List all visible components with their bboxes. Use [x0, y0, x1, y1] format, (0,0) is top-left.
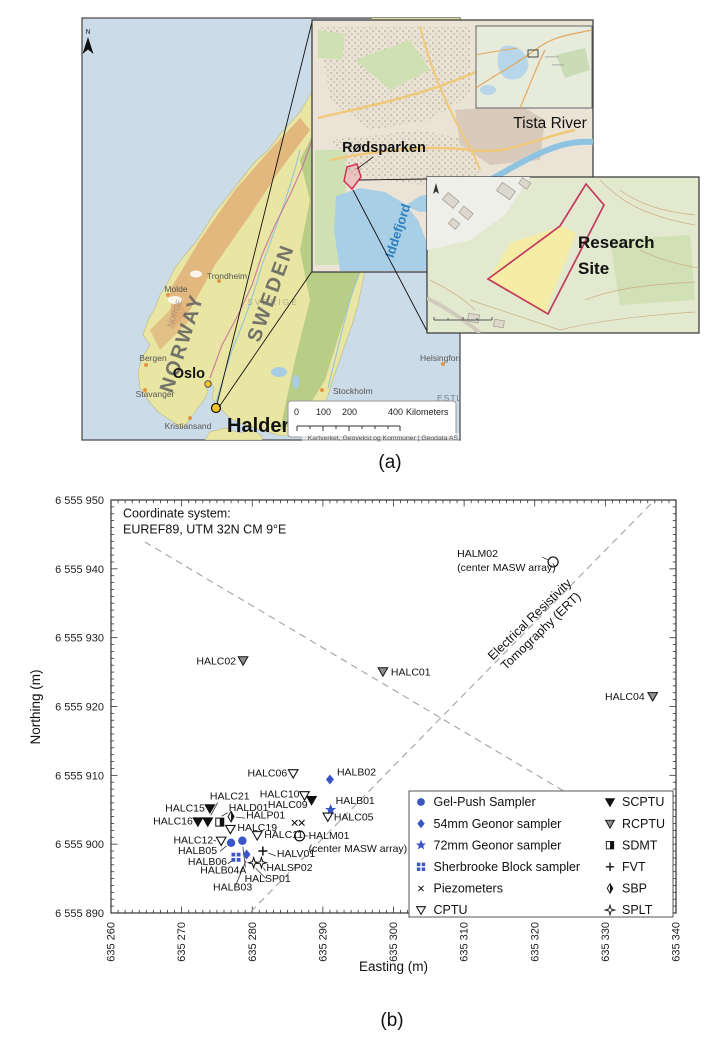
point-label-HALB05: HALB05: [178, 845, 217, 857]
svg-text:72mm Geonor sampler: 72mm Geonor sampler: [434, 838, 562, 852]
svg-text:FVT: FVT: [622, 860, 646, 874]
svg-text:54mm Geonor sampler: 54mm Geonor sampler: [434, 817, 562, 831]
legend-item-gelpush: Gel-Push Sampler: [417, 795, 535, 809]
x-axis-title: Easting (m): [359, 959, 428, 974]
svg-text:635 320: 635 320: [529, 922, 541, 962]
svg-text:635 330: 635 330: [600, 922, 612, 962]
svg-text:6 555 950: 6 555 950: [55, 495, 104, 507]
svg-text:635 290: 635 290: [317, 922, 329, 962]
point-label-HALB02: HALB02: [337, 766, 376, 778]
svg-text:CPTU: CPTU: [434, 903, 468, 917]
mini-lake-2: [480, 85, 496, 95]
point-label-HALP01: HALP01: [246, 810, 285, 822]
svg-text:SCPTU: SCPTU: [622, 795, 664, 809]
label-kristiansand: Kristiansand: [165, 421, 212, 431]
north-arrow-label: N: [85, 29, 90, 36]
dot-oslo: [205, 381, 211, 387]
point-label-HALM02: HALM02: [457, 548, 498, 560]
label-tista-river: Tista River: [513, 115, 587, 132]
label-stockholm: Stockholm: [333, 386, 373, 396]
research-inset: Research Site: [427, 177, 699, 333]
point-HALM02: HALM02(center MASW array): [457, 548, 558, 574]
svg-text:635 260: 635 260: [106, 922, 118, 962]
chart-legend: Gel-Push Sampler54mm Geonor sampler72mm …: [409, 791, 673, 917]
point-PZ2: [299, 820, 305, 826]
panel-a-map: NORGE SVERIGE NORWAY SWEDEN Trondheim Mo…: [82, 18, 699, 442]
legend-item-geonor72: 72mm Geonor sampler: [416, 838, 561, 852]
label-oslo: Oslo: [173, 366, 205, 382]
lake-vattern: [293, 375, 300, 389]
label-rodsparken: Rødsparken: [342, 140, 426, 156]
point-label-HALC05: HALC05: [334, 812, 374, 824]
point-HALC19: HALC19: [226, 822, 278, 834]
svg-text:SBP: SBP: [622, 882, 647, 896]
dot-bergen: [144, 363, 148, 367]
figure-page: NORGE SVERIGE NORWAY SWEDEN Trondheim Mo…: [0, 0, 709, 1042]
svg-text:6 555 920: 6 555 920: [55, 702, 104, 714]
coordinate-note: Coordinate system:EUREF89, UTM 32N CM 9°…: [123, 507, 286, 537]
point-label-HALB01: HALB01: [336, 795, 375, 807]
label-trondheim: Trondheim: [207, 271, 247, 281]
svg-text:635 280: 635 280: [247, 922, 259, 962]
point-HALC15: HALC15: [165, 802, 215, 814]
point-HALC04: HALC04: [605, 691, 658, 703]
svg-text:SPLT: SPLT: [622, 903, 653, 917]
figure-svg: NORGE SVERIGE NORWAY SWEDEN Trondheim Mo…: [0, 0, 709, 1042]
caption-b: (b): [380, 1010, 403, 1031]
scalebar-unit: Kilometers: [406, 407, 449, 417]
dot-stockholm: [320, 388, 324, 392]
svg-text:635 310: 635 310: [459, 922, 471, 962]
scalebar-400: 400: [388, 407, 403, 417]
point-label-HALC19: HALC19: [237, 822, 277, 834]
label-molde: Molde: [164, 284, 187, 294]
svg-text:EUREF89, UTM 32N CM 9°E: EUREF89, UTM 32N CM 9°E: [123, 523, 286, 537]
point-label-HALC15: HALC15: [165, 802, 205, 814]
svg-text:Sherbrooke Block sampler: Sherbrooke Block sampler: [434, 860, 581, 874]
point-label-HALC21: HALC21: [210, 790, 250, 802]
scalebar-0: 0: [294, 407, 299, 417]
point-HALC02: HALC02: [196, 655, 248, 667]
point-label-HALV01: HALV01: [277, 848, 315, 860]
lake-vanern: [271, 367, 287, 377]
label-research-line1: Research: [578, 233, 655, 252]
svg-text:Piezometers: Piezometers: [434, 882, 503, 896]
point-label-HALC04: HALC04: [605, 691, 645, 703]
svg-text:6 555 930: 6 555 930: [55, 633, 104, 645]
svg-text:635 340: 635 340: [671, 922, 683, 962]
dot-kristiansand: [188, 416, 192, 420]
y-axis-title: Northing (m): [28, 669, 43, 744]
x-tick-labels: 635 260635 270635 280635 290635 300635 3…: [106, 922, 683, 962]
label-halden: Halden: [227, 415, 294, 437]
point-label-HALB06: HALB06: [188, 856, 227, 868]
svg-text:6 555 940: 6 555 940: [55, 564, 104, 576]
label-helsingfors: Helsingfors: [420, 353, 463, 363]
point-HALC05: HALC05: [323, 812, 374, 824]
svg-text:6 555 910: 6 555 910: [55, 770, 104, 782]
map-attribution: Kartverket, Geovekst og Kommuner | Geoda…: [308, 435, 459, 442]
point-label-HALM02: (center MASW array): [457, 562, 556, 574]
map-scalebar: 0 100 200 400 Kilometers: [288, 401, 456, 437]
label-bergen: Bergen: [139, 353, 167, 363]
glacier-2: [190, 271, 202, 278]
legend-item-sherbrooke: Sherbrooke Block sampler: [417, 860, 580, 874]
scalebar-200: 200: [342, 407, 357, 417]
svg-text:6 555 890: 6 555 890: [55, 908, 104, 920]
green-2: [318, 30, 345, 60]
point-label-HALC06: HALC06: [248, 767, 288, 779]
point-HALV01: HALV01: [258, 847, 315, 861]
y-tick-labels: 6 555 8906 555 9006 555 9106 555 9206 55…: [55, 495, 104, 920]
legend-item-geonor54: 54mm Geonor sampler: [417, 817, 561, 831]
caption-a: (a): [378, 452, 401, 473]
svg-text:Gel-Push Sampler: Gel-Push Sampler: [434, 795, 536, 809]
label-stavanger: Stavanger: [136, 389, 175, 399]
point-label-HALC02: HALC02: [196, 655, 236, 667]
legend-box: [409, 791, 673, 917]
mini-text-placeholder-1: [545, 56, 559, 58]
svg-text:635 270: 635 270: [176, 922, 188, 962]
point-HALC06: HALC06: [248, 767, 299, 779]
mini-inset: [476, 26, 592, 108]
point-HALC01: HALC01: [378, 666, 431, 678]
mini-text-placeholder-2: [552, 64, 564, 66]
label-research-line2: Site: [578, 259, 609, 278]
svg-text:Coordinate system:: Coordinate system:: [123, 507, 231, 521]
point-HALB02: HALB02: [326, 766, 376, 784]
ert-label: Electrical ResistivityTomography (ERT): [485, 576, 586, 675]
point-label-HALM01: HALM01: [309, 830, 350, 842]
point-label-HALSP01: HALSP01: [245, 873, 291, 885]
panel-b-chart: 635 260635 270635 280635 290635 300635 3…: [28, 495, 683, 974]
svg-text:635 300: 635 300: [388, 922, 400, 962]
scalebar-100: 100: [316, 407, 331, 417]
svg-text:RCPTU: RCPTU: [622, 817, 665, 831]
point-label-HALM01: (center MASW array): [309, 843, 408, 855]
svg-text:SDMT: SDMT: [622, 838, 658, 852]
point-PZ1: [292, 820, 298, 826]
svg-text:6 555 900: 6 555 900: [55, 839, 104, 851]
point-label-HALC16: HALC16: [153, 815, 193, 827]
point-label-HALC01: HALC01: [391, 666, 431, 678]
point-HALC16: HALC16: [153, 815, 203, 827]
dot-halden: [212, 404, 221, 413]
point-label-HALSP02: HALSP02: [266, 862, 312, 874]
